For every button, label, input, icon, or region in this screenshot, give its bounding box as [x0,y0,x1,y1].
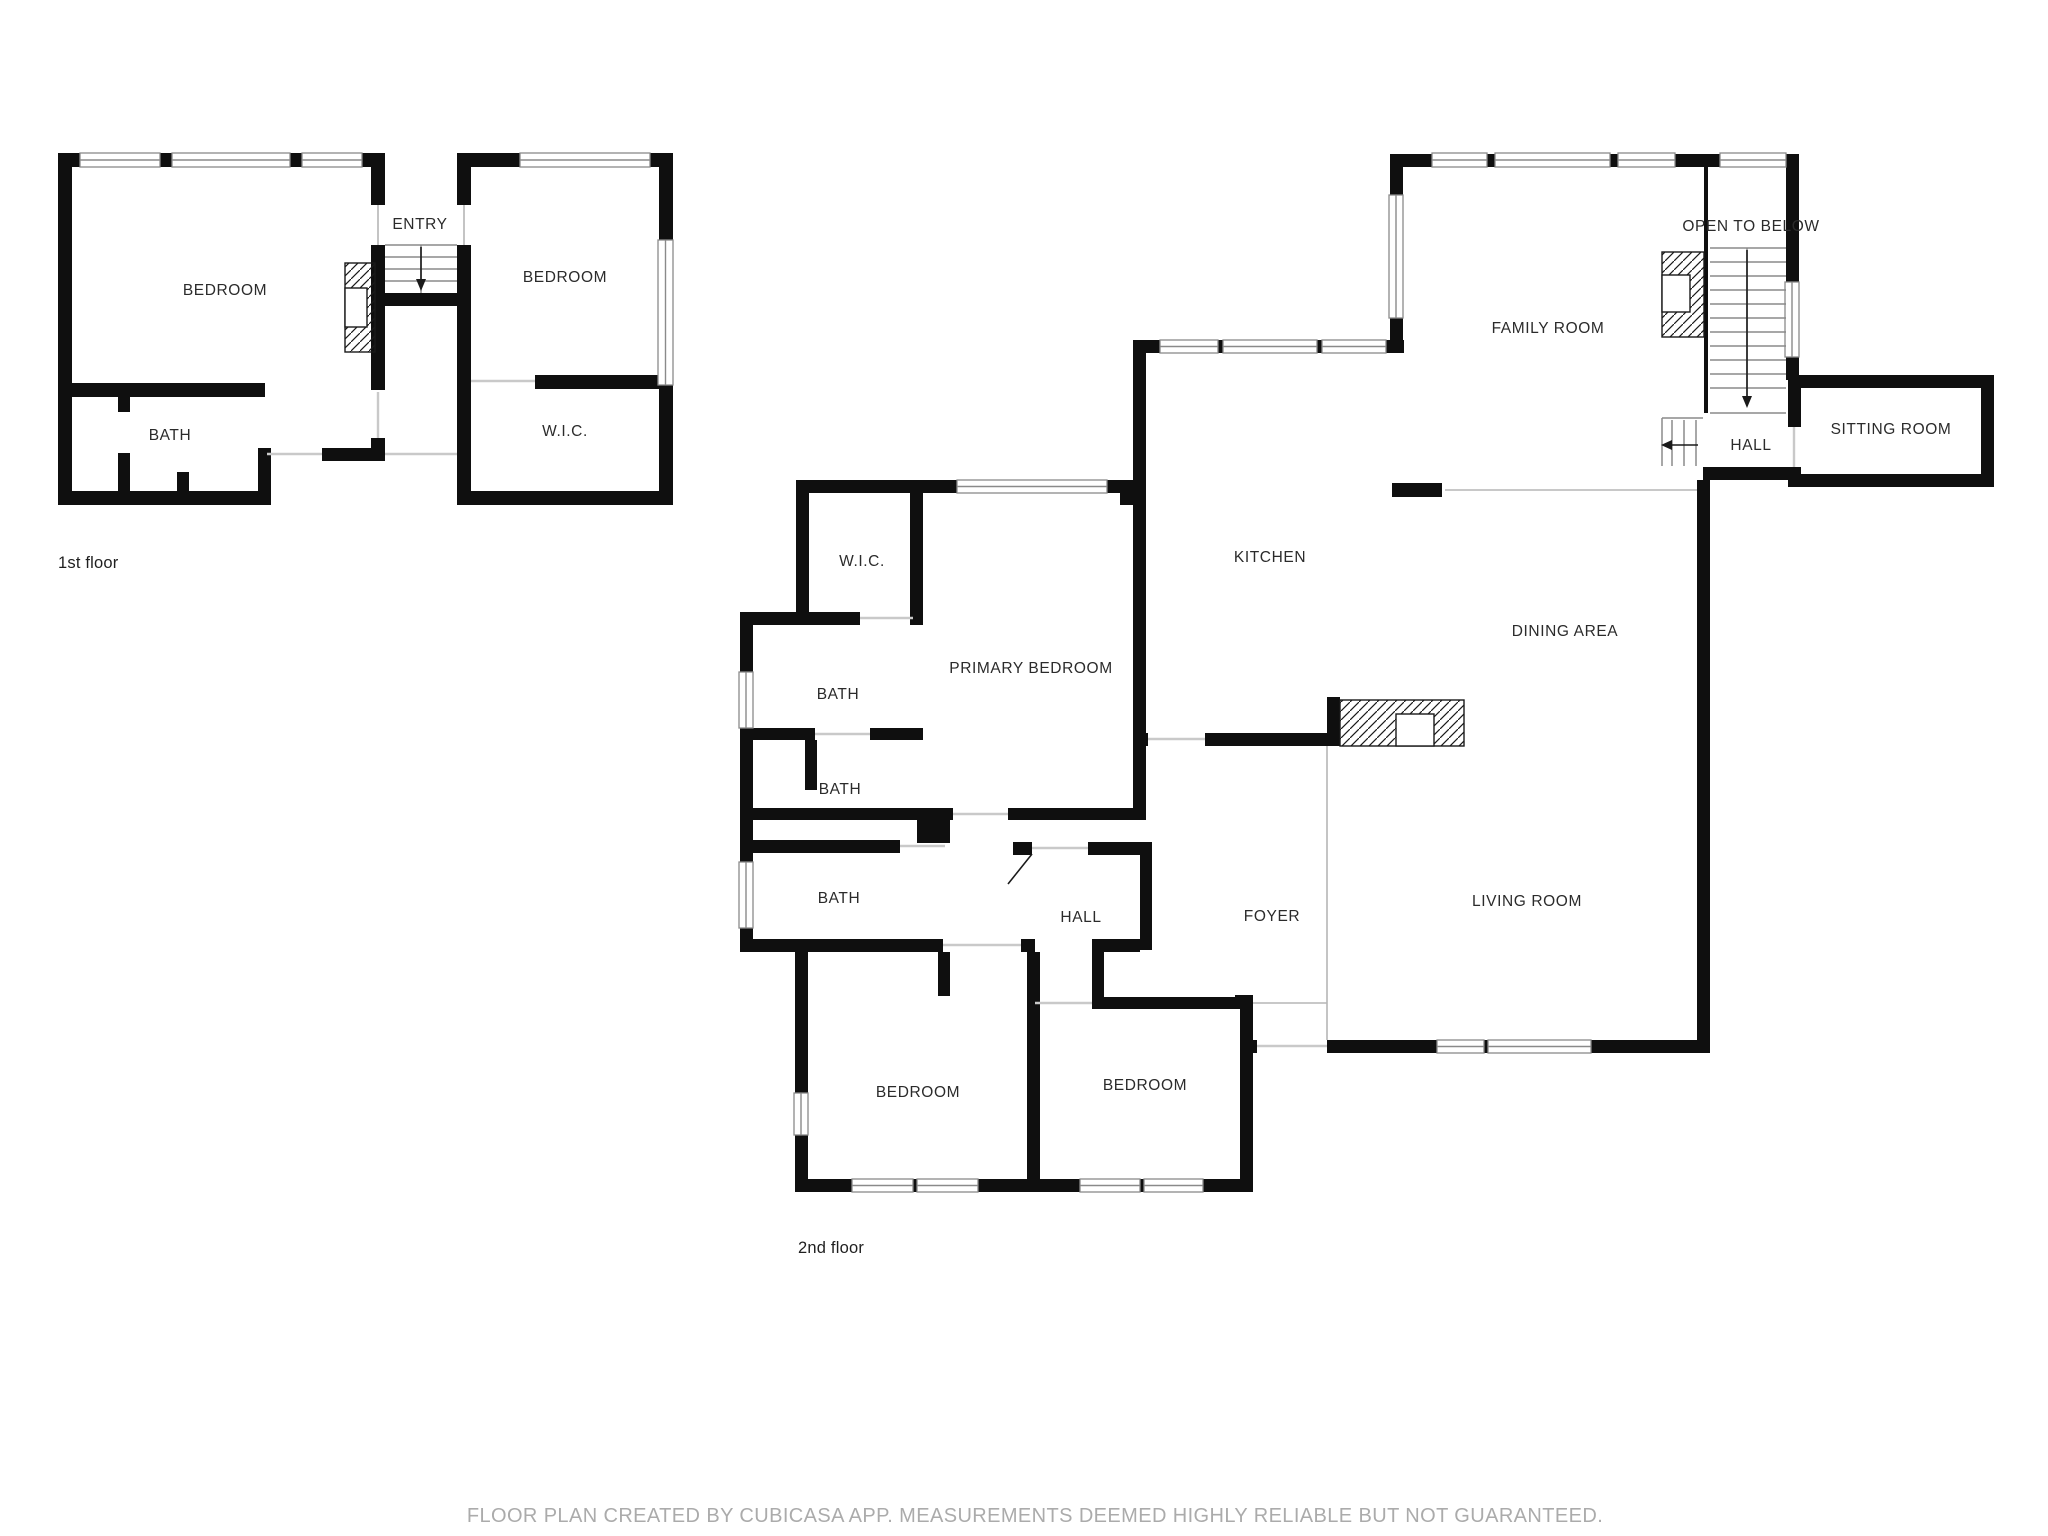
room-label-living-room: LIVING ROOM [1472,893,1582,910]
room-label-bath-lower: BATH [818,890,861,907]
room-label-bedroom-1f-right: BEDROOM [523,269,607,286]
stairs-down-arrow-icon [416,279,426,291]
room-label-bath-middle: BATH [819,781,862,798]
family-room-fireplace [1662,252,1704,337]
room-label-wic-2f: W.I.C. [839,553,885,570]
room-label-bedroom-2f-right: BEDROOM [1103,1077,1187,1094]
room-label-bath-1f: BATH [149,427,192,444]
stairs-down-arrow-icon [1742,396,1752,408]
first-floor-caption: 1st floor [58,554,119,572]
room-label-entry: ENTRY [392,216,447,233]
floor-plan-canvas: BEDROOM ENTRY BEDROOM BATH W.I.C. 1st fl… [0,0,2048,1536]
room-label-hall-2f: HALL [1060,909,1101,926]
living-room-fireplace [1340,700,1464,746]
room-label-bath-upper: BATH [817,686,860,703]
first-floor-door-openings [267,205,535,454]
footer-disclaimer: FLOOR PLAN CREATED BY CUBICASA APP. MEAS… [467,1505,1603,1527]
room-label-dining-area: DINING AREA [1512,623,1619,640]
room-label-wic-1f: W.I.C. [542,423,588,440]
room-label-family-room: FAMILY ROOM [1492,320,1605,337]
room-label-bedroom-1f-left: BEDROOM [183,282,267,299]
second-floor-walls [740,154,1994,1192]
room-label-hall-upper: HALL [1730,437,1771,454]
entry-staircase [385,245,457,293]
main-staircase [1710,248,1786,413]
room-label-primary-bedroom: PRIMARY BEDROOM [949,660,1112,677]
second-floor-caption: 2nd floor [798,1239,864,1257]
room-label-foyer: FOYER [1244,908,1300,925]
second-floor-windows [739,153,1799,1192]
room-label-open-to-below: OPEN TO BELOW [1682,218,1819,235]
first-floor-plan: BEDROOM ENTRY BEDROOM BATH W.I.C. 1st fl… [58,153,673,572]
hall-stair-run [1661,418,1703,466]
floor-plan-page: BEDROOM ENTRY BEDROOM BATH W.I.C. 1st fl… [0,0,2048,1536]
entry-fireplace [345,263,375,352]
room-label-kitchen: KITCHEN [1234,549,1306,566]
room-label-sitting-room: SITTING ROOM [1831,421,1952,438]
second-floor-plan: FAMILY ROOM OPEN TO BELOW SITTING ROOM H… [739,153,1994,1257]
room-label-bedroom-2f-left: BEDROOM [876,1084,960,1101]
